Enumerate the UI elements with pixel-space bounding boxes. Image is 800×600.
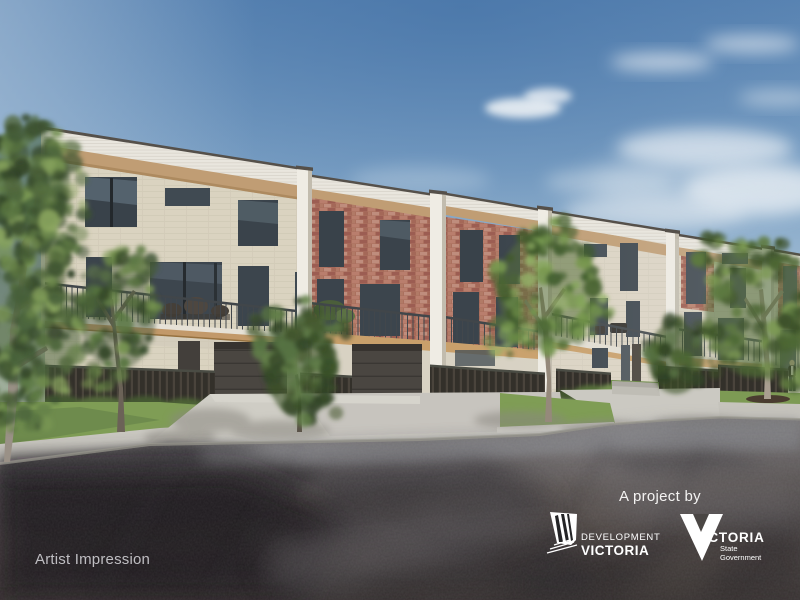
svg-text:Government: Government — [720, 553, 762, 562]
svg-text:A project by: A project by — [619, 488, 701, 505]
svg-text:State: State — [720, 544, 738, 553]
svg-text:Artist Impression: Artist Impression — [35, 551, 150, 568]
svg-text:VICTORIA: VICTORIA — [581, 543, 649, 558]
svg-text:DEVELOPMENT: DEVELOPMENT — [581, 532, 661, 543]
svg-text:VICTORIA: VICTORIA — [694, 530, 765, 545]
